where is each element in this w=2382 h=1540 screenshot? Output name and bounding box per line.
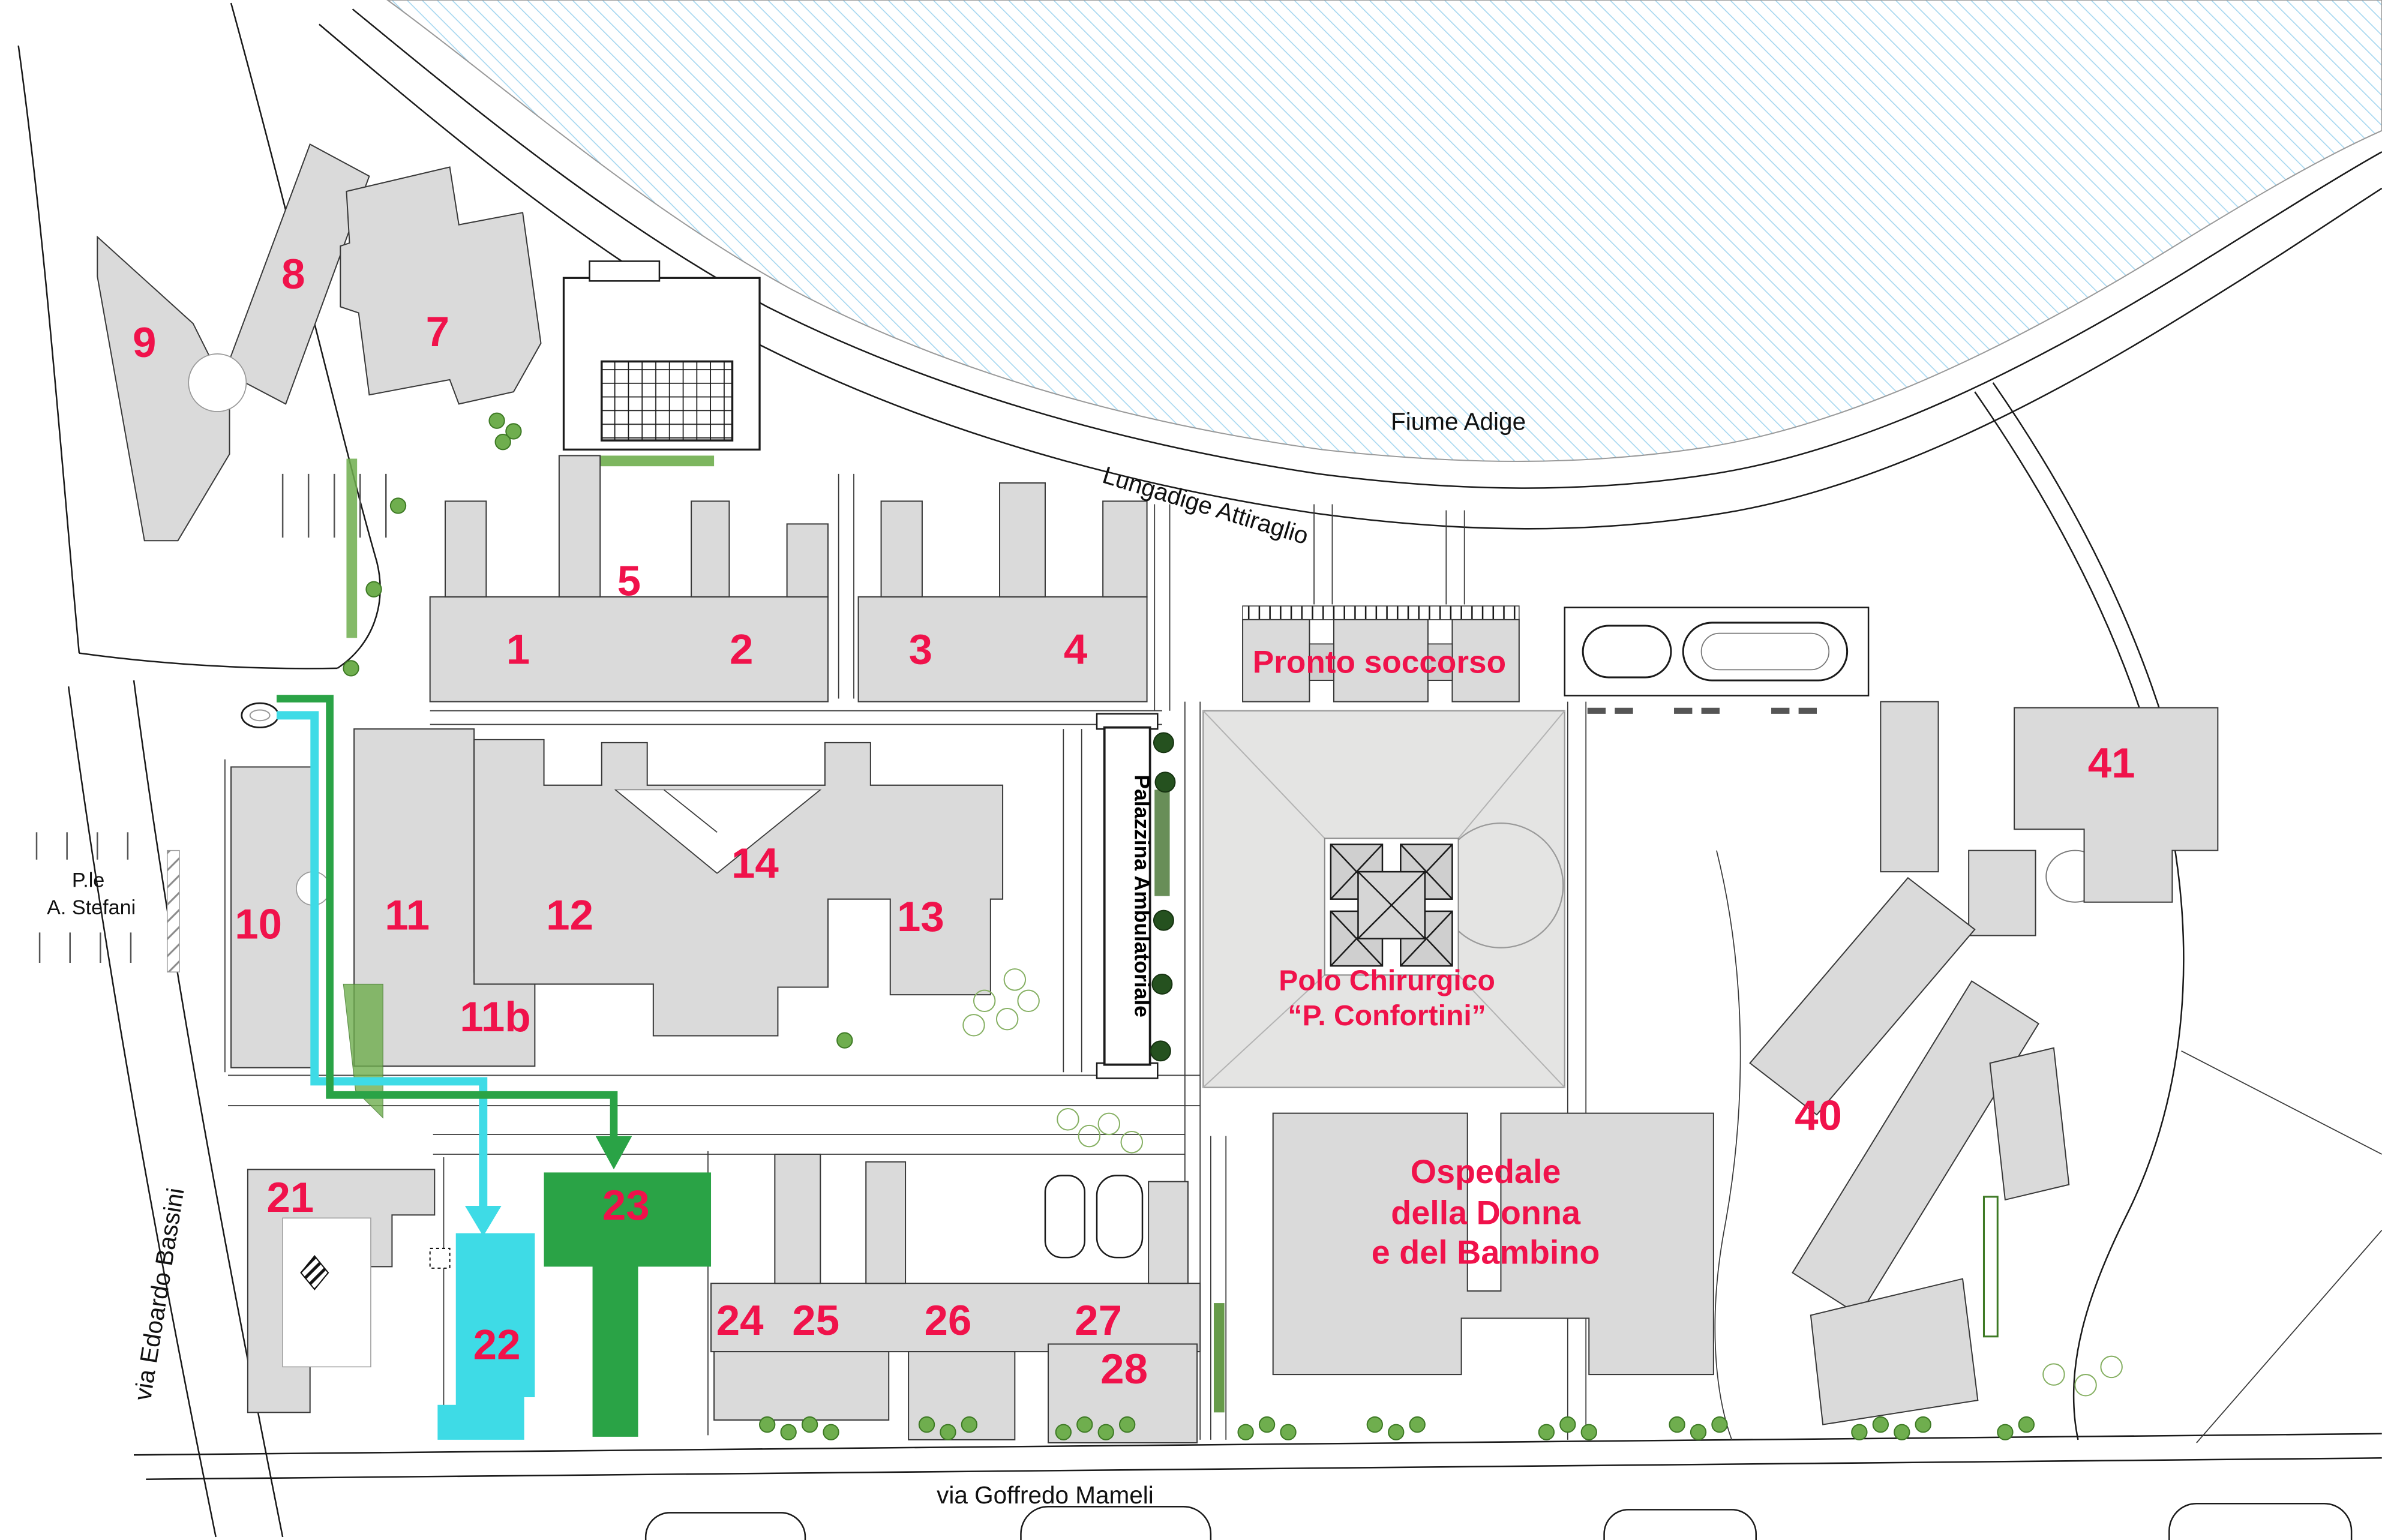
tree-icon <box>1539 1425 1554 1440</box>
tree-icon <box>802 1417 817 1432</box>
tree-icon <box>1367 1417 1382 1432</box>
tree-icon <box>1388 1425 1403 1440</box>
road-internal <box>1568 702 1586 1440</box>
tree-icon <box>1410 1417 1425 1432</box>
courtyard-oval <box>1097 1175 1142 1257</box>
tree-icon <box>1280 1425 1295 1440</box>
tree-icon <box>2075 1374 2096 1395</box>
building-label-25: 25 <box>792 1297 839 1344</box>
tree-icon <box>962 1417 977 1432</box>
hedge <box>346 459 357 638</box>
roundabout <box>242 703 278 728</box>
building-label-3: 3 <box>909 626 932 673</box>
tree-icon <box>997 1008 1018 1029</box>
tree-icon <box>489 413 504 428</box>
building-label-10: 10 <box>235 901 282 948</box>
hedge <box>1214 1303 1225 1412</box>
tree-icon <box>1152 974 1172 994</box>
building-label-12: 12 <box>546 891 593 939</box>
road-topleft-far <box>19 46 79 653</box>
ospedale-label-line1: Ospedale <box>1411 1153 1561 1190</box>
pronto-soccorso-label: Pronto soccorso <box>1253 644 1506 680</box>
building-label-11: 11 <box>385 891 430 939</box>
tree-icon <box>1894 1425 1909 1440</box>
map-canvas: Fiume Adige Lungadige Attiraglio via Gof… <box>0 0 2382 1540</box>
tree-icon <box>1056 1425 1071 1440</box>
river-label: Fiume Adige <box>1391 407 1526 435</box>
building-1-2-slab <box>430 597 828 702</box>
tree-icon <box>1916 1417 1931 1432</box>
tree-icon <box>2043 1364 2064 1385</box>
ospedale-label-line3: e del Bambino <box>1372 1233 1600 1271</box>
building-wing <box>1000 483 1045 597</box>
tree-icon <box>1057 1109 1078 1130</box>
tree-icon <box>1873 1417 1888 1432</box>
road-corner-se <box>2182 1051 2382 1443</box>
tree-icon <box>963 1014 984 1035</box>
building-7 <box>340 167 541 404</box>
road-internal <box>1154 504 1169 710</box>
polo-label-line1: Polo Chirurgico <box>1279 965 1495 997</box>
tree-icon <box>1852 1425 1867 1440</box>
road-piazzale-link <box>79 653 337 669</box>
road-ospedale-west <box>1715 851 1740 1440</box>
tree-icon <box>1154 911 1174 930</box>
bassini-label: via Edoardo Bassini <box>128 1186 189 1403</box>
mameli-bays <box>646 1503 2351 1540</box>
tree-icon <box>837 1032 852 1047</box>
building-label-27: 27 <box>1075 1297 1122 1344</box>
dashed-kiosk <box>430 1248 450 1268</box>
building-label-4: 4 <box>1064 626 1088 673</box>
building-label-26: 26 <box>925 1297 972 1344</box>
building-label-23: 23 <box>602 1182 650 1229</box>
tree-icon <box>496 434 511 449</box>
tree-icon <box>366 582 381 597</box>
tree-icon <box>1099 1113 1120 1134</box>
tree-icon <box>1582 1425 1597 1440</box>
building-technical-grid <box>562 261 760 466</box>
tree-icon <box>760 1417 775 1432</box>
piazzale-label-line1: P.le <box>72 869 104 891</box>
building-label-22: 22 <box>473 1322 521 1369</box>
tree-icon <box>1120 1417 1135 1432</box>
road-internal <box>1063 729 1081 1072</box>
building-label-2: 2 <box>730 626 753 673</box>
tree-icon <box>1712 1417 1727 1432</box>
tree-icon <box>940 1425 955 1440</box>
building-label-11b: 11b <box>460 993 530 1041</box>
building-5-wing <box>559 455 600 596</box>
tree-icon <box>1997 1425 2012 1440</box>
building-label-24: 24 <box>716 1297 764 1344</box>
building-label-8: 8 <box>281 251 305 298</box>
building-label-7: 7 <box>426 308 449 356</box>
tree-icon <box>2101 1356 2122 1377</box>
tree-icon <box>1079 1125 1100 1146</box>
courtyard-oval <box>1045 1175 1085 1257</box>
hedge <box>1154 789 1169 896</box>
mameli-road-edge-2 <box>146 1458 2381 1479</box>
building-wing <box>691 501 729 596</box>
tree-icon <box>1238 1425 1253 1440</box>
parking-islands <box>1565 608 1868 696</box>
tree-icon <box>823 1425 838 1440</box>
tree-icon <box>919 1417 934 1432</box>
tree-icon <box>343 661 358 676</box>
building-3-4-slab <box>859 597 1147 702</box>
tree-icon <box>1004 969 1025 990</box>
bassini-road-edge-1 <box>68 686 216 1537</box>
building-wing <box>787 524 828 597</box>
polo-label-line2: “P. Confortini” <box>1288 999 1486 1032</box>
tree-icon <box>1691 1425 1706 1440</box>
tree-icon <box>391 498 406 513</box>
building-label-13: 13 <box>897 893 944 941</box>
tree-icon <box>1151 1041 1171 1061</box>
tree-icon <box>2019 1417 2034 1432</box>
building-label-1: 1 <box>506 626 530 673</box>
road-internal <box>1314 504 1465 604</box>
palazzina-label: Palazzina Ambulatoriale <box>1130 774 1154 1017</box>
hospital-campus-map: Fiume Adige Lungadige Attiraglio via Gof… <box>0 0 2382 1540</box>
mameli-label: via Goffredo Mameli <box>937 1481 1154 1509</box>
piazzale-label-line2: A. Stefani <box>47 896 136 919</box>
building-21-court <box>283 1218 371 1367</box>
building-12-13-14 <box>474 740 1003 1036</box>
tree-icon <box>1099 1425 1114 1440</box>
tree-icon <box>1259 1417 1274 1432</box>
tree-icon <box>1154 733 1174 752</box>
building-label-14: 14 <box>731 840 779 887</box>
building-label-21: 21 <box>266 1174 314 1221</box>
tree-icon <box>1669 1417 1684 1432</box>
hedge <box>1984 1197 1997 1337</box>
ospedale-label-line2: della Donna <box>1391 1194 1581 1231</box>
route-cyan-arrowhead <box>465 1206 502 1236</box>
road-internal <box>433 1134 1185 1154</box>
road-internal <box>839 474 854 699</box>
building-wing <box>881 501 922 596</box>
building-9-court <box>188 354 246 412</box>
route-green-arrowhead <box>596 1136 632 1170</box>
tree-icon <box>781 1425 796 1440</box>
building-label-41: 41 <box>2088 740 2135 787</box>
building-label-28: 28 <box>1100 1346 1148 1393</box>
building-wing <box>445 501 486 596</box>
tree-icon <box>1018 990 1039 1011</box>
tree-icon <box>1077 1417 1092 1432</box>
parking-hatch-strip <box>167 851 179 972</box>
road-internal <box>430 711 1162 725</box>
tree-icon <box>1156 772 1175 792</box>
building-wing <box>1103 501 1147 596</box>
building-41 <box>2014 708 2218 902</box>
tree-icon <box>1560 1417 1575 1432</box>
building-label-9: 9 <box>133 319 156 367</box>
building-label-40: 40 <box>1795 1092 1842 1139</box>
building-label-5: 5 <box>617 557 641 605</box>
